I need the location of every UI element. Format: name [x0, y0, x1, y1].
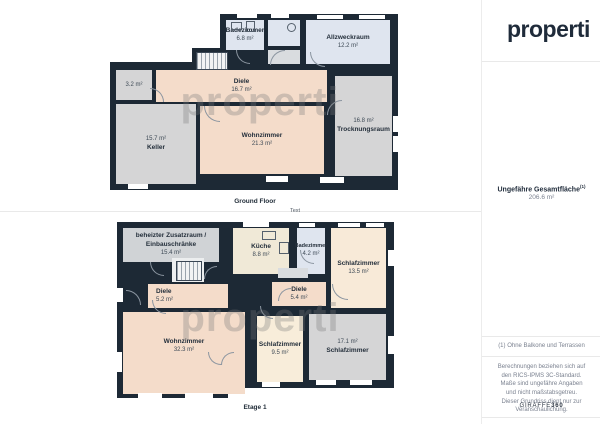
info-panel: properti Ungefähre Gesamtfläche(1) 206.6…: [481, 0, 600, 424]
window-slot: [237, 14, 257, 18]
properti-logo: properti: [507, 16, 590, 43]
window-slot: [262, 382, 280, 387]
window-slot: [393, 136, 398, 152]
room-area: 13.5 m²: [348, 269, 368, 277]
room-area: 15.4 m²: [161, 250, 181, 258]
window-slot: [320, 177, 344, 183]
room-name: Schlafzimmer: [259, 341, 301, 349]
room-area: 32.3 m²: [174, 347, 194, 355]
room-area: 6.8 m²: [236, 36, 253, 44]
panel-divider: [482, 417, 600, 418]
window-slot: [243, 222, 269, 227]
room-name: Schlafzimmer: [337, 260, 379, 268]
credit-360: 360: [551, 403, 563, 409]
room-name: beheizter Zusatzraum / Einbauschränke: [130, 232, 212, 248]
toilet-icon: [246, 21, 255, 32]
sink-icon: [262, 231, 276, 240]
window-slot: [316, 380, 336, 385]
room-area: 9.5 m²: [271, 350, 288, 358]
giraffe-credit: GIRAFFE360: [482, 403, 600, 409]
room-name: Schlafzimmer: [326, 347, 368, 355]
stove-icon: [279, 242, 289, 254]
room-area: 8.8 m²: [252, 252, 269, 260]
stairs-ground: [196, 52, 228, 70]
room-shaft: [278, 268, 308, 278]
total-area-text: Ungefähre Gesamtfläche: [498, 186, 580, 193]
room-name: Küche: [251, 243, 271, 251]
room-zusatzraum: beheizter Zusatzraum / Einbauschränke 15…: [123, 228, 219, 262]
room-name: Diele: [156, 288, 172, 296]
window-slot: [185, 393, 213, 398]
room-area: 21.3 m²: [252, 141, 272, 149]
floorplan-page-ground: Badezimmer 6.8 m² Allzweckraum 12.2 m² D…: [0, 0, 481, 211]
floor-title-etage1: Etage 1: [190, 404, 320, 411]
room-name: Wohnzimmer: [242, 132, 283, 140]
window-slot: [359, 15, 385, 19]
total-area-sup: (1): [580, 184, 586, 189]
window-slot: [117, 352, 122, 372]
window-slot: [138, 393, 162, 398]
window-slot: [299, 223, 315, 227]
panel-divider: [482, 356, 600, 357]
floorplan-page-etage1: Text beheizter Zusatzraum / Einbauschrän…: [0, 212, 481, 424]
room-name: Allzweckraum: [326, 34, 369, 42]
floor-title-ground: Ground Floor: [180, 198, 330, 205]
watermark: properti: [130, 296, 390, 341]
footnote: (1) Ohne Balkone und Terrassen: [482, 343, 600, 349]
window-slot: [271, 14, 289, 18]
window-slot: [317, 15, 343, 19]
room-shower-nook-gf: [268, 20, 300, 46]
stairs-etage1: [176, 261, 202, 281]
panel-divider: [482, 61, 600, 62]
window-slot: [350, 380, 372, 385]
shower-icon: [287, 23, 296, 32]
window-slot: [338, 223, 360, 227]
window-slot: [117, 288, 123, 302]
total-area-label: Ungefähre Gesamtfläche(1): [482, 184, 600, 193]
room-name: Keller: [147, 144, 165, 152]
note-text: Text: [290, 208, 300, 214]
window-slot: [266, 176, 288, 182]
watermark: properti: [130, 80, 390, 125]
window-slot: [128, 184, 148, 189]
room-area: 15.7 m²: [146, 136, 166, 144]
room-area: 12.2 m²: [338, 43, 358, 51]
panel-divider: [482, 336, 600, 337]
room-name: Diele: [291, 286, 307, 294]
window-slot: [393, 116, 398, 132]
sink-icon: [231, 22, 242, 30]
room-name: Trocknungsraum: [337, 126, 390, 134]
window-slot: [388, 250, 394, 266]
room-name: Badezimmer: [295, 243, 328, 250]
wall-cutout: [228, 388, 394, 398]
credit-name: GIRAFFE: [519, 403, 551, 409]
window-slot: [366, 223, 384, 227]
total-area-value: 206.6 m²: [482, 194, 600, 201]
